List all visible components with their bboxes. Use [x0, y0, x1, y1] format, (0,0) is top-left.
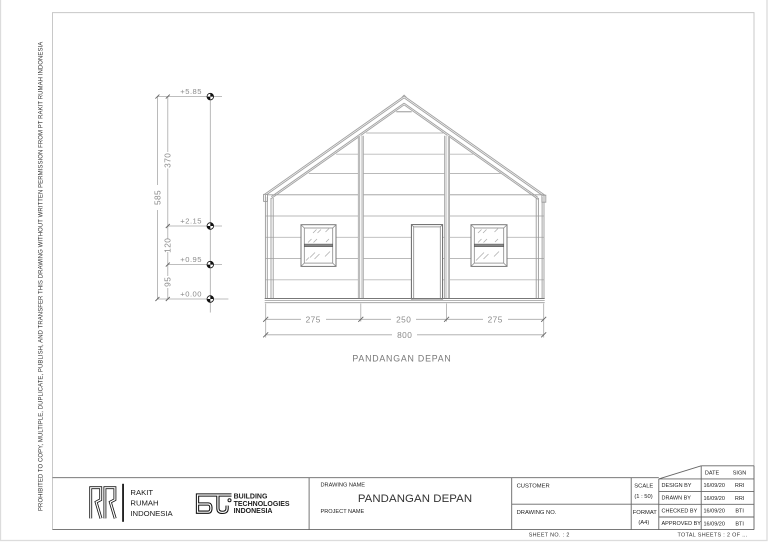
svg-text:BUILDING: BUILDING — [234, 493, 268, 500]
svg-text:RUMAH: RUMAH — [130, 499, 158, 508]
svg-text:+0.00: +0.00 — [180, 290, 202, 299]
svg-text:DESIGN BY: DESIGN BY — [662, 483, 692, 489]
svg-text:RRI: RRI — [735, 483, 745, 489]
svg-text:INDONESIA: INDONESIA — [234, 508, 273, 515]
svg-text:16/09/20: 16/09/20 — [703, 483, 724, 489]
svg-text:PANDANGAN DEPAN: PANDANGAN DEPAN — [358, 493, 472, 505]
svg-text:DATE: DATE — [705, 471, 720, 477]
svg-text:SHEET NO. : 2: SHEET NO. : 2 — [529, 532, 570, 538]
svg-text:SCALE: SCALE — [634, 484, 653, 490]
svg-text:BTI: BTI — [735, 521, 744, 527]
svg-text:RRI: RRI — [735, 496, 745, 502]
svg-text:INDONESIA: INDONESIA — [130, 509, 173, 518]
svg-text:CUSTOMER: CUSTOMER — [517, 484, 550, 490]
svg-text:RAKIT: RAKIT — [130, 488, 153, 497]
svg-text:275: 275 — [306, 314, 321, 324]
svg-text:16/09/20: 16/09/20 — [703, 496, 724, 502]
svg-text:FORMAT: FORMAT — [633, 510, 658, 516]
svg-text:(A4): (A4) — [638, 520, 649, 526]
svg-text:DRAWING NAME: DRAWING NAME — [321, 482, 366, 488]
svg-text:APPROVED BY: APPROVED BY — [662, 521, 702, 527]
svg-text:BTI: BTI — [735, 509, 744, 515]
svg-text:TECHNOLOGIES: TECHNOLOGIES — [234, 501, 290, 508]
svg-text:DRAWN BY: DRAWN BY — [662, 496, 692, 502]
svg-text:275: 275 — [488, 314, 503, 324]
svg-text:SIGN: SIGN — [733, 471, 746, 477]
svg-text:(1 : 50): (1 : 50) — [634, 494, 652, 500]
svg-text:16/09/20: 16/09/20 — [703, 521, 724, 527]
svg-text:PROJECT NAME: PROJECT NAME — [321, 509, 365, 515]
svg-text:DRAWING NO.: DRAWING NO. — [517, 510, 557, 516]
svg-text:+2.15: +2.15 — [180, 217, 202, 226]
svg-text:PANDANGAN DEPAN: PANDANGAN DEPAN — [352, 354, 451, 364]
svg-text:800: 800 — [397, 330, 412, 340]
svg-text:585: 585 — [152, 190, 162, 205]
svg-text:250: 250 — [396, 314, 411, 324]
svg-text:TOTAL SHEETS : 2 OF ...: TOTAL SHEETS : 2 OF ... — [678, 532, 748, 538]
svg-text:+0.95: +0.95 — [180, 255, 202, 264]
svg-text:370: 370 — [163, 153, 173, 168]
svg-text:+5.85: +5.85 — [180, 87, 202, 96]
svg-text:95: 95 — [163, 277, 173, 287]
svg-text:PROHIBITED TO COPY, MULTIPLE,: PROHIBITED TO COPY, MULTIPLE, DUPLICATE,… — [39, 42, 45, 511]
svg-text:120: 120 — [163, 238, 173, 253]
svg-text:CHECKED BY: CHECKED BY — [662, 508, 698, 514]
svg-text:16/09/20: 16/09/20 — [703, 509, 724, 515]
